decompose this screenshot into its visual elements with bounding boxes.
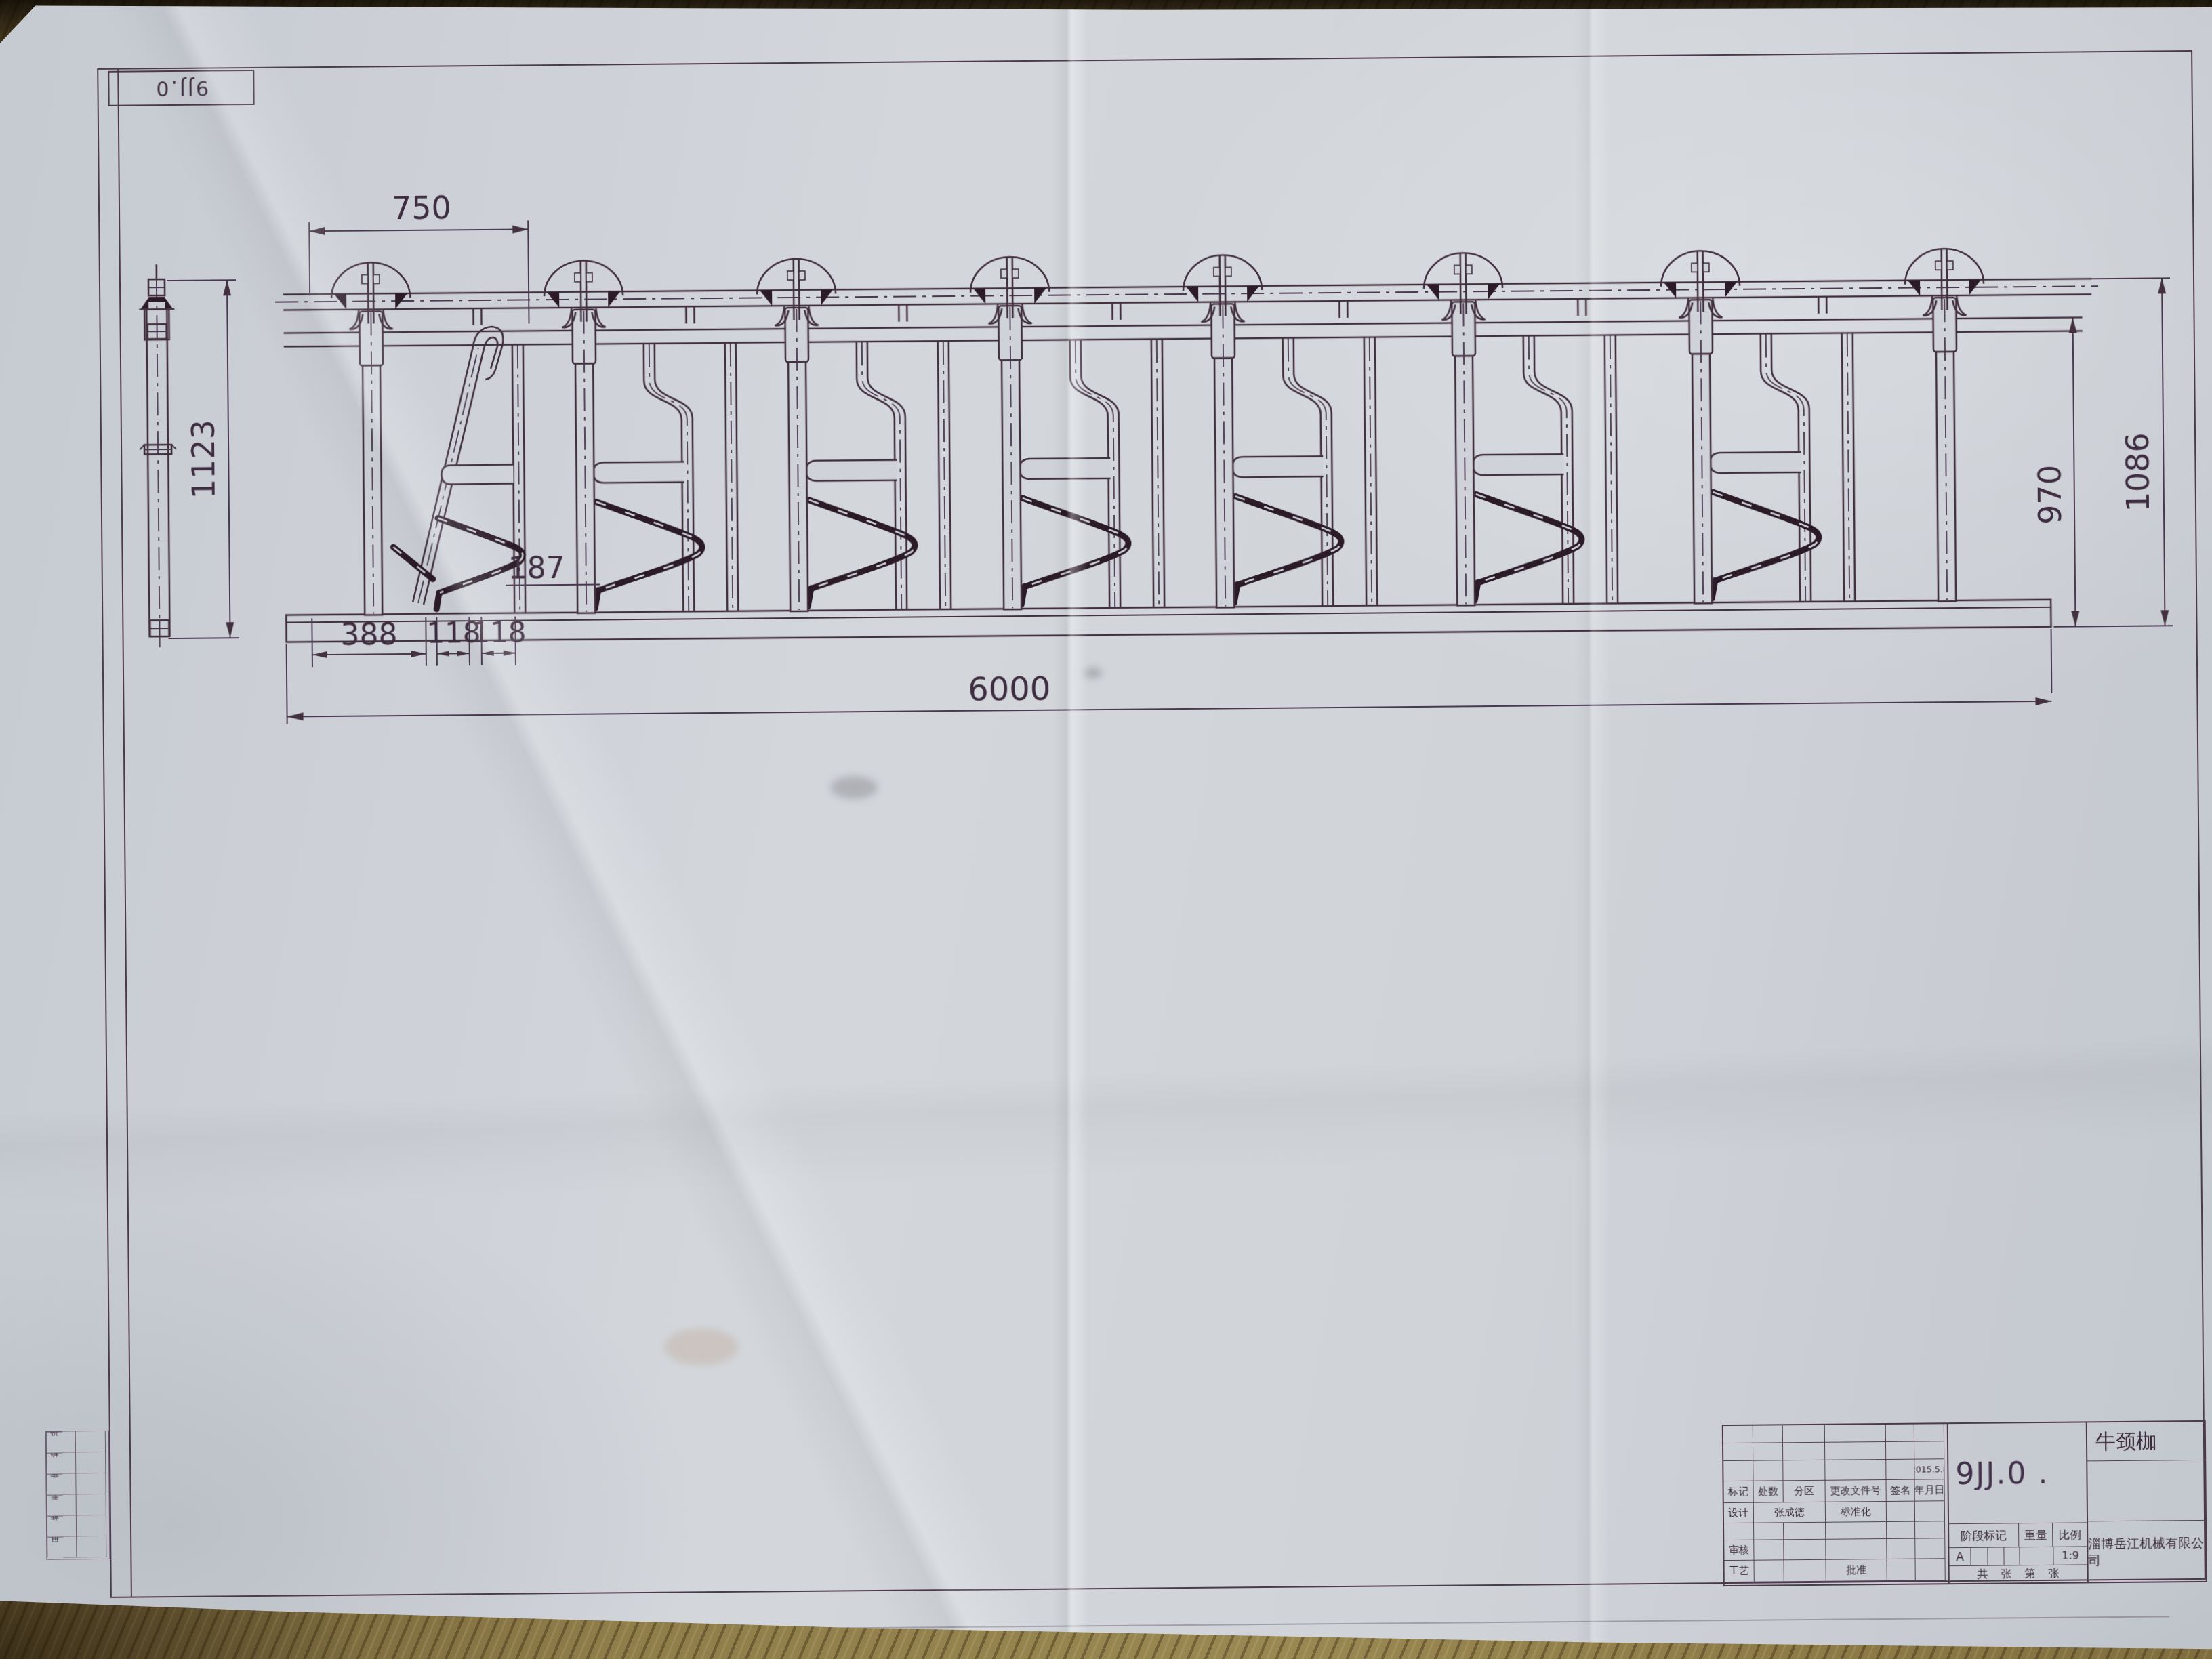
bay-unit xyxy=(1472,335,1618,605)
empty-cell xyxy=(1915,1521,1945,1538)
empty-cell xyxy=(63,1536,77,1557)
dimension-1123: 1123 xyxy=(165,280,239,638)
empty-cell xyxy=(1754,1540,1784,1560)
empty-cell xyxy=(1724,1523,1754,1540)
dim-388-label: 388 xyxy=(340,617,397,652)
empty-cell xyxy=(76,1452,106,1473)
margin-label: 审核 xyxy=(46,1473,62,1494)
part-name: 牛颈枷 xyxy=(2087,1422,2203,1461)
empty-cell xyxy=(1825,1442,1886,1460)
title-block-right: 牛颈枷 淄博岳江机械有限公司 xyxy=(2087,1422,2205,1582)
rev-header-sign: 签名 xyxy=(1886,1480,1914,1502)
empty-cell xyxy=(2020,1547,2054,1565)
dimension-6000: 6000 xyxy=(287,629,2052,724)
empty-cell xyxy=(1783,1425,1825,1443)
empty-cell xyxy=(1915,1501,1945,1521)
empty-cell xyxy=(1753,1443,1783,1460)
empty-cell xyxy=(1887,1559,1916,1581)
empty-cell xyxy=(1886,1442,1914,1460)
cad-drawing: 750 1123 187 xyxy=(0,0,2212,1659)
smudge-mark xyxy=(1084,668,1102,678)
weight-label: 重量 xyxy=(2019,1523,2053,1547)
empty-cell xyxy=(1825,1460,1886,1481)
empty-cell xyxy=(1825,1425,1886,1443)
empty-cell xyxy=(1916,1559,1946,1580)
margin-label: 日期 xyxy=(47,1536,63,1557)
scale-value: 1:9 xyxy=(2054,1546,2087,1565)
smudge-mark xyxy=(830,776,878,799)
empty-cell xyxy=(1914,1441,1944,1459)
title-block: 2015.5.8 标记 处数 分区 更改文件号 签名 年月日 设计 张成德 标准… xyxy=(1722,1420,2207,1586)
bay-unit xyxy=(1019,340,1164,609)
empty-cell xyxy=(1826,1522,1887,1540)
company-name: 淄博岳江机械有限公司 xyxy=(2088,1521,2205,1582)
design-label: 设计 xyxy=(1724,1503,1754,1523)
dimension-750: 750 xyxy=(309,188,529,325)
stage-value: A xyxy=(1949,1547,1971,1566)
empty-cell xyxy=(1915,1538,1945,1559)
check-label: 审核 xyxy=(1724,1540,1754,1561)
rev-header-zone: 分区 xyxy=(1783,1481,1825,1503)
empty-cell xyxy=(77,1494,106,1515)
designer-name: 张成德 xyxy=(1754,1502,1826,1523)
process-label: 工艺 xyxy=(1725,1561,1755,1582)
empty-cell xyxy=(2004,1547,2020,1565)
sheet-content: 9JJ.0 xyxy=(0,0,2212,1659)
dim-6000-label: 6000 xyxy=(968,670,1051,708)
drawing-number: 9JJ.0 . xyxy=(1948,1422,2087,1524)
empty-cell xyxy=(76,1431,106,1452)
dim-750-label: 750 xyxy=(392,189,451,226)
bay-unit xyxy=(592,344,738,613)
smudge-mark xyxy=(664,1328,739,1366)
empty-cell xyxy=(77,1515,106,1536)
rev-header-docno: 更改文件号 xyxy=(1825,1480,1886,1502)
margin-signature-table: 设计 校对 审核 工艺 标准 日期 xyxy=(45,1431,110,1560)
empty-cell xyxy=(1784,1560,1826,1582)
empty-cell xyxy=(1784,1540,1826,1561)
margin-label: 校对 xyxy=(46,1452,62,1473)
stage-label: 阶段标记 xyxy=(1949,1523,2019,1548)
empty-cell xyxy=(1887,1522,1915,1539)
empty-cell xyxy=(2087,1460,2204,1521)
empty-cell xyxy=(62,1452,76,1473)
margin-label: 标准 xyxy=(47,1515,63,1536)
empty-cell xyxy=(76,1473,106,1494)
empty-cell xyxy=(62,1473,76,1494)
bottom-rail xyxy=(286,600,2051,642)
empty-cell xyxy=(1723,1443,1753,1461)
empty-cell xyxy=(1783,1460,1825,1481)
title-block-middle: 9JJ.0 . 阶段标记 重量 比例 A 1:9 xyxy=(1948,1422,2089,1583)
empty-cell xyxy=(1886,1460,1914,1480)
empty-cell xyxy=(1784,1523,1826,1540)
dim-1123-label: 1123 xyxy=(185,419,222,499)
bay-unit xyxy=(1231,338,1377,607)
empty-cell xyxy=(1914,1424,1944,1441)
scale-label: 比例 xyxy=(2053,1523,2087,1547)
dim-970-label: 970 xyxy=(2031,465,2068,525)
bay-unit xyxy=(805,342,951,611)
empty-cell xyxy=(1753,1425,1783,1443)
dim-118b-label: 118 xyxy=(472,615,527,649)
empty-cell xyxy=(1887,1539,1915,1559)
empty-cell xyxy=(1723,1426,1753,1443)
empty-cell xyxy=(1988,1547,2005,1565)
rev-header-date: 年月日 xyxy=(1914,1479,1944,1501)
rev-header-count: 处数 xyxy=(1753,1481,1783,1502)
approve-label: 批准 xyxy=(1826,1559,1887,1582)
bay-open-yoke xyxy=(392,326,526,614)
dim-187-label: 187 xyxy=(508,550,565,586)
empty-cell xyxy=(1723,1461,1753,1481)
empty-cell xyxy=(1887,1502,1915,1522)
empty-cell xyxy=(1783,1443,1825,1461)
empty-cell xyxy=(63,1515,77,1536)
margin-label: 工艺 xyxy=(47,1494,63,1515)
margin-label: 设计 xyxy=(46,1431,62,1452)
empty-cell xyxy=(1754,1523,1784,1540)
standardization-label: 标准化 xyxy=(1826,1502,1887,1523)
empty-cell xyxy=(1826,1539,1887,1560)
top-rail xyxy=(275,279,2098,310)
rev-header-mark: 标记 xyxy=(1723,1481,1753,1503)
title-block-revision-table: 2015.5.8 标记 处数 分区 更改文件号 签名 年月日 设计 张成德 标准… xyxy=(1723,1424,1950,1585)
empty-cell xyxy=(1971,1547,1988,1566)
empty-cell xyxy=(1886,1425,1914,1442)
empty-cell xyxy=(1755,1560,1784,1582)
empty-cell xyxy=(1753,1460,1783,1481)
date-cell: 2015.5.8 xyxy=(1914,1459,1944,1479)
support-beam xyxy=(284,317,2083,346)
bay-unit xyxy=(1709,333,1855,602)
empty-cell xyxy=(77,1536,106,1557)
photo-of-engineering-drawing: 9JJ.0 xyxy=(0,0,2212,1659)
dimension-970: 970 xyxy=(2030,317,2085,627)
post-side-view xyxy=(138,264,178,649)
sheets-count: 共 张 第 张 xyxy=(1950,1564,2087,1583)
empty-cell xyxy=(63,1494,77,1515)
dim-1086-label: 1086 xyxy=(2119,432,2156,512)
empty-cell xyxy=(62,1431,76,1452)
paper-sheet: 9JJ.0 xyxy=(0,0,2212,1659)
